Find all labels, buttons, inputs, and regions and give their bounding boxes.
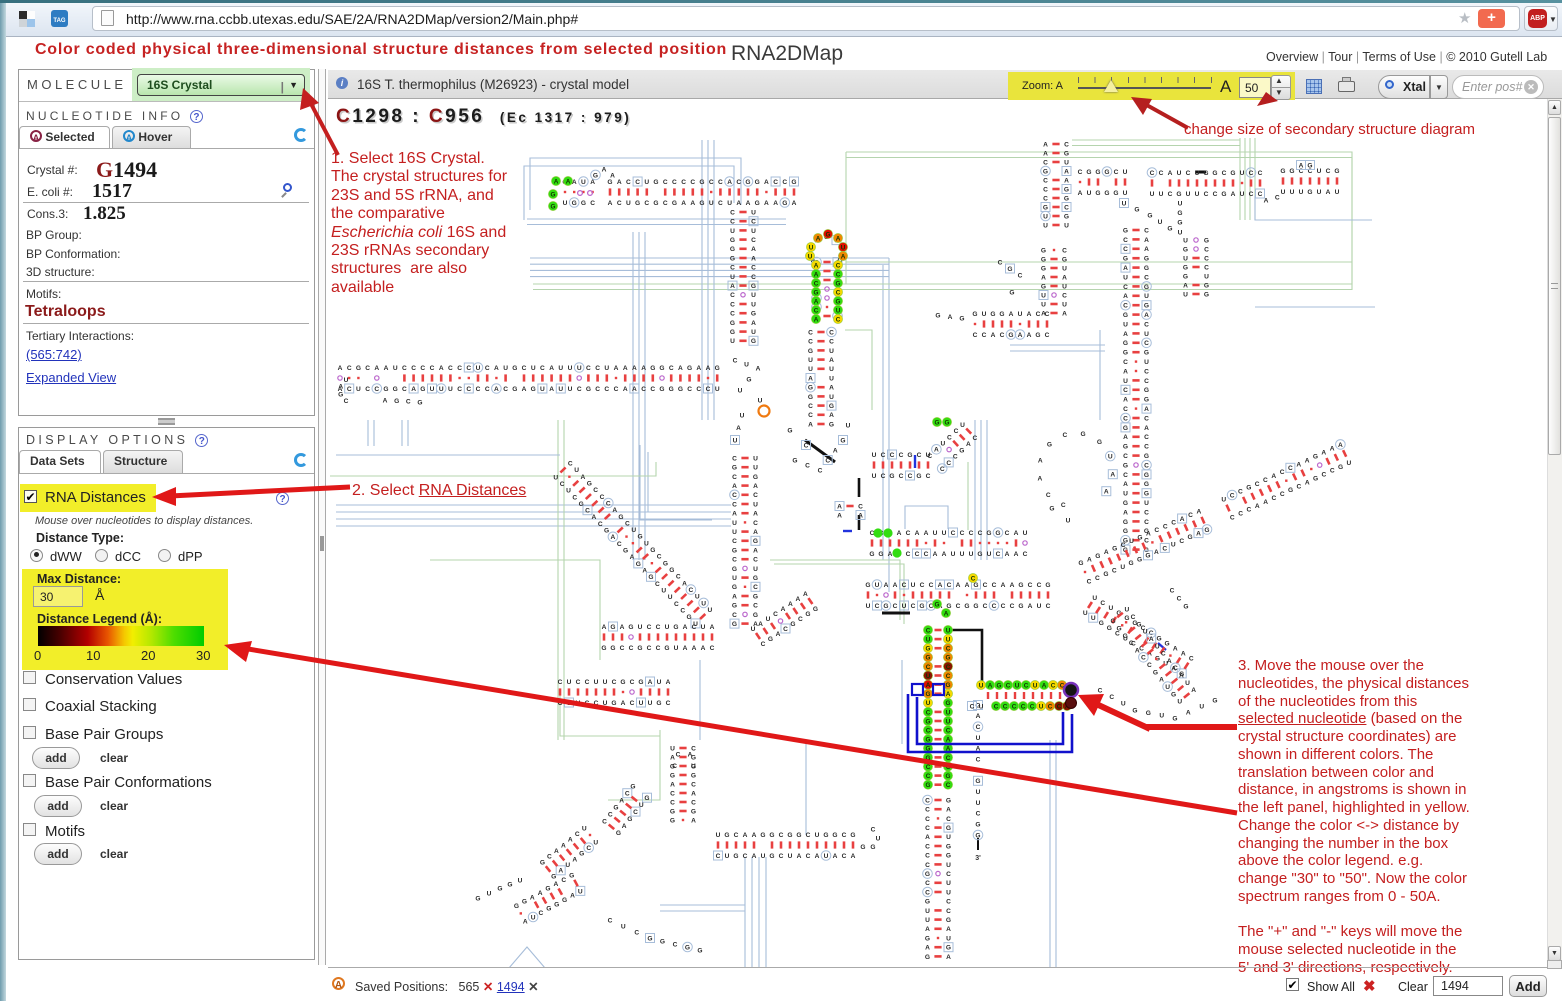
svg-text:G: G bbox=[1123, 340, 1128, 347]
svg-text:C: C bbox=[689, 587, 694, 594]
svg-text:A: A bbox=[751, 246, 756, 253]
svg-text:A: A bbox=[572, 856, 577, 863]
svg-text:G: G bbox=[616, 830, 621, 837]
svg-text:C: C bbox=[1213, 191, 1218, 198]
svg-text:A: A bbox=[732, 511, 737, 518]
svg-text:C: C bbox=[994, 703, 999, 710]
svg-text:G: G bbox=[926, 782, 931, 789]
svg-text:C: C bbox=[971, 575, 976, 582]
svg-text:A: A bbox=[965, 582, 970, 589]
svg-text:G: G bbox=[1132, 707, 1137, 714]
svg-text:G: G bbox=[687, 365, 692, 372]
svg-text:G: G bbox=[522, 899, 527, 906]
svg-text:G: G bbox=[393, 386, 398, 393]
svg-text:C: C bbox=[1018, 272, 1023, 279]
svg-text:C: C bbox=[946, 664, 951, 671]
svg-text:U: U bbox=[665, 624, 670, 631]
svg-text:C: C bbox=[983, 603, 988, 610]
svg-text:C: C bbox=[970, 703, 975, 710]
svg-text:C: C bbox=[1048, 703, 1053, 710]
svg-text:A: A bbox=[1087, 557, 1092, 564]
svg-text:G: G bbox=[653, 179, 658, 186]
svg-text:G: G bbox=[1008, 332, 1013, 339]
svg-text:G: G bbox=[1123, 312, 1128, 319]
svg-text:A: A bbox=[1181, 651, 1186, 658]
svg-text:A: A bbox=[752, 832, 757, 839]
svg-text:U: U bbox=[657, 679, 662, 686]
svg-text:U: U bbox=[1125, 607, 1130, 614]
svg-text:G: G bbox=[1041, 247, 1046, 254]
svg-text:G: G bbox=[787, 832, 792, 839]
svg-text:A: A bbox=[554, 881, 559, 888]
svg-text:G: G bbox=[1144, 453, 1149, 460]
svg-text:C: C bbox=[926, 709, 931, 716]
svg-text:U: U bbox=[1159, 713, 1164, 720]
svg-text:G: G bbox=[1144, 472, 1149, 479]
svg-text:C: C bbox=[1288, 465, 1293, 472]
svg-text:A: A bbox=[1154, 549, 1159, 556]
svg-text:G: G bbox=[935, 419, 940, 426]
svg-text:U: U bbox=[674, 645, 679, 652]
svg-text:A: A bbox=[1149, 636, 1154, 643]
svg-text:U: U bbox=[1018, 311, 1023, 318]
svg-text:G: G bbox=[1064, 213, 1069, 220]
svg-text:U: U bbox=[558, 386, 563, 393]
svg-text:C: C bbox=[1144, 340, 1149, 347]
svg-text:C: C bbox=[1322, 472, 1327, 479]
svg-text:U: U bbox=[1091, 615, 1096, 622]
svg-text:G: G bbox=[1145, 553, 1150, 560]
svg-text:U: U bbox=[925, 917, 930, 924]
svg-text:C: C bbox=[761, 641, 766, 648]
svg-text:G: G bbox=[787, 427, 792, 434]
svg-text:A: A bbox=[570, 893, 575, 900]
svg-text:U: U bbox=[946, 718, 951, 725]
svg-text:C: C bbox=[1024, 682, 1029, 689]
svg-text:C: C bbox=[617, 541, 622, 548]
svg-text:G: G bbox=[604, 528, 609, 535]
svg-text:G: G bbox=[732, 584, 737, 591]
svg-text:A: A bbox=[1144, 312, 1149, 319]
svg-text:A: A bbox=[1146, 531, 1151, 538]
svg-text:G: G bbox=[1095, 553, 1100, 560]
svg-text:A: A bbox=[1123, 265, 1128, 272]
svg-text:C: C bbox=[575, 831, 580, 838]
svg-text:C: C bbox=[842, 832, 847, 839]
svg-text:C: C bbox=[406, 399, 411, 406]
svg-text:C: C bbox=[978, 530, 983, 537]
svg-text:G: G bbox=[730, 320, 735, 327]
svg-text:C: C bbox=[732, 501, 737, 508]
svg-text:A: A bbox=[619, 798, 624, 805]
svg-text:C: C bbox=[1188, 512, 1193, 519]
svg-text:C: C bbox=[946, 728, 951, 735]
svg-text:A: A bbox=[682, 580, 687, 587]
svg-text:A: A bbox=[743, 832, 748, 839]
svg-text:C: C bbox=[1123, 246, 1128, 253]
svg-text:U: U bbox=[1155, 643, 1160, 650]
svg-text:G: G bbox=[678, 386, 683, 393]
svg-text:U: U bbox=[1064, 222, 1069, 229]
svg-text:U: U bbox=[503, 365, 508, 372]
svg-text:G: G bbox=[1134, 206, 1139, 213]
svg-text:U: U bbox=[670, 745, 675, 752]
svg-text:G: G bbox=[1203, 170, 1208, 177]
svg-text:G: G bbox=[997, 682, 1002, 689]
svg-text:G: G bbox=[1136, 621, 1141, 628]
svg-text:U: U bbox=[753, 566, 758, 573]
svg-text:A: A bbox=[816, 235, 821, 242]
svg-text:C: C bbox=[925, 880, 930, 887]
svg-text:U: U bbox=[866, 603, 871, 610]
svg-text:A: A bbox=[815, 853, 820, 860]
svg-text:C: C bbox=[706, 386, 711, 393]
svg-text:G: G bbox=[840, 437, 845, 444]
svg-text:G: G bbox=[883, 603, 888, 610]
svg-text:G: G bbox=[1086, 169, 1091, 176]
svg-text:G: G bbox=[753, 538, 758, 545]
svg-text:C: C bbox=[814, 280, 819, 287]
svg-text:C: C bbox=[1272, 495, 1277, 502]
svg-text:C: C bbox=[568, 461, 573, 468]
svg-text:C: C bbox=[1114, 169, 1119, 176]
svg-text:C: C bbox=[1258, 191, 1263, 198]
svg-text:C: C bbox=[634, 929, 639, 936]
svg-text:C: C bbox=[676, 751, 681, 758]
svg-text:U: U bbox=[604, 365, 609, 372]
svg-text:A: A bbox=[858, 512, 863, 519]
svg-text:C: C bbox=[718, 179, 723, 186]
svg-text:G: G bbox=[975, 832, 980, 839]
svg-text:C: C bbox=[598, 521, 603, 528]
svg-text:G: G bbox=[1176, 191, 1181, 198]
svg-text:C: C bbox=[1045, 332, 1050, 339]
svg-text:C: C bbox=[915, 551, 920, 558]
svg-text:U: U bbox=[875, 582, 880, 589]
svg-text:G: G bbox=[829, 403, 834, 410]
svg-text:G: G bbox=[946, 773, 951, 780]
svg-text:C: C bbox=[420, 365, 425, 372]
svg-text:U: U bbox=[732, 520, 737, 527]
svg-text:G: G bbox=[644, 795, 649, 802]
svg-text:G: G bbox=[926, 646, 931, 653]
svg-text:U: U bbox=[568, 365, 573, 372]
svg-text:C: C bbox=[946, 816, 951, 823]
svg-text:A: A bbox=[1042, 682, 1047, 689]
svg-text:C: C bbox=[946, 646, 951, 653]
svg-text:A: A bbox=[1005, 551, 1010, 558]
svg-text:G: G bbox=[870, 844, 875, 851]
svg-text:C: C bbox=[730, 311, 735, 318]
svg-text:U: U bbox=[574, 467, 579, 474]
svg-text:U: U bbox=[1083, 610, 1088, 617]
svg-text:C: C bbox=[1023, 551, 1028, 558]
svg-text:U: U bbox=[553, 474, 558, 481]
svg-text:C: C bbox=[595, 365, 600, 372]
svg-text:U: U bbox=[648, 700, 653, 707]
svg-text:A: A bbox=[1338, 442, 1343, 449]
svg-text:C: C bbox=[946, 871, 951, 878]
svg-text:C: C bbox=[1123, 284, 1128, 291]
svg-text:C: C bbox=[600, 494, 605, 501]
svg-text:U: U bbox=[876, 835, 881, 842]
svg-text:U: U bbox=[926, 673, 931, 680]
svg-text:U: U bbox=[946, 889, 951, 896]
svg-text:U: U bbox=[1183, 255, 1188, 262]
svg-text:C: C bbox=[608, 812, 613, 819]
svg-text:A: A bbox=[833, 447, 838, 454]
svg-text:U: U bbox=[946, 627, 951, 634]
svg-text:A: A bbox=[1179, 673, 1184, 680]
svg-text:C: C bbox=[973, 435, 978, 442]
svg-text:A: A bbox=[1123, 293, 1128, 300]
svg-text:U: U bbox=[1037, 603, 1042, 610]
svg-text:A: A bbox=[1027, 332, 1032, 339]
svg-text:C: C bbox=[1297, 483, 1302, 490]
svg-text:G: G bbox=[832, 832, 837, 839]
svg-text:C: C bbox=[593, 487, 598, 494]
svg-text:A: A bbox=[884, 582, 889, 589]
svg-text:G: G bbox=[1204, 282, 1209, 289]
svg-text:U: U bbox=[727, 200, 732, 207]
svg-text:C: C bbox=[773, 611, 778, 618]
svg-text:C: C bbox=[836, 262, 841, 269]
svg-text:C: C bbox=[751, 237, 756, 244]
svg-text:G: G bbox=[1111, 618, 1116, 625]
svg-text:A: A bbox=[851, 853, 856, 860]
svg-text:C: C bbox=[875, 603, 880, 610]
svg-text:U: U bbox=[1041, 292, 1046, 299]
svg-text:C: C bbox=[606, 500, 611, 507]
svg-text:G: G bbox=[1212, 697, 1217, 704]
svg-text:G: G bbox=[990, 311, 995, 318]
svg-text:A: A bbox=[549, 365, 554, 372]
svg-text:A: A bbox=[753, 483, 758, 490]
svg-text:U: U bbox=[1178, 200, 1183, 207]
svg-text:A: A bbox=[338, 383, 343, 390]
svg-text:G: G bbox=[972, 311, 977, 318]
svg-text:U: U bbox=[946, 637, 951, 644]
svg-text:G: G bbox=[1007, 266, 1012, 273]
svg-text:G: G bbox=[732, 465, 737, 472]
svg-text:G: G bbox=[823, 832, 828, 839]
svg-text:G: G bbox=[540, 859, 545, 866]
svg-text:C: C bbox=[1123, 359, 1128, 366]
svg-text:A: A bbox=[776, 631, 781, 638]
svg-text:C: C bbox=[753, 520, 758, 527]
svg-text:U: U bbox=[982, 311, 987, 318]
svg-text:U: U bbox=[1144, 331, 1149, 338]
svg-text:A: A bbox=[558, 868, 563, 875]
svg-text:A: A bbox=[1123, 331, 1128, 338]
svg-text:A: A bbox=[1018, 332, 1023, 339]
svg-text:G: G bbox=[733, 853, 738, 860]
svg-text:G: G bbox=[946, 655, 951, 662]
svg-text:G: G bbox=[610, 645, 615, 652]
svg-text:G: G bbox=[1307, 189, 1312, 196]
svg-text:U: U bbox=[841, 244, 846, 251]
svg-text:A: A bbox=[1104, 549, 1109, 556]
svg-text:U: U bbox=[979, 703, 984, 710]
svg-text:A: A bbox=[632, 386, 637, 393]
svg-text:A: A bbox=[648, 679, 653, 686]
svg-text:G: G bbox=[813, 606, 818, 613]
svg-text:C: C bbox=[612, 679, 617, 686]
svg-text:C: C bbox=[946, 673, 951, 680]
svg-text:A: A bbox=[602, 166, 607, 173]
svg-text:C: C bbox=[558, 700, 563, 707]
svg-text:A: A bbox=[1028, 603, 1033, 610]
svg-text:C: C bbox=[1230, 492, 1235, 499]
svg-text:C: C bbox=[522, 365, 527, 372]
svg-text:G: G bbox=[1313, 476, 1318, 483]
svg-text:C: C bbox=[998, 259, 1003, 266]
svg-text:C: C bbox=[1010, 603, 1015, 610]
svg-text:U: U bbox=[344, 377, 349, 384]
svg-text:G: G bbox=[1172, 715, 1177, 722]
svg-text:U: U bbox=[809, 244, 814, 251]
svg-text:G: G bbox=[1117, 626, 1122, 633]
svg-text:C: C bbox=[1144, 444, 1149, 451]
svg-text:A: A bbox=[678, 365, 683, 372]
svg-text:A: A bbox=[736, 425, 741, 432]
svg-text:A: A bbox=[1299, 162, 1304, 169]
svg-text:C: C bbox=[608, 917, 613, 924]
svg-text:C: C bbox=[954, 428, 959, 435]
svg-text:G: G bbox=[925, 935, 930, 942]
svg-text:A: A bbox=[523, 919, 528, 926]
svg-text:G: G bbox=[656, 700, 661, 707]
svg-text:G: G bbox=[975, 767, 980, 774]
svg-text:U: U bbox=[1120, 564, 1125, 571]
svg-text:A: A bbox=[683, 624, 688, 631]
svg-text:G: G bbox=[650, 547, 655, 554]
svg-text:A: A bbox=[1010, 582, 1015, 589]
svg-text:A: A bbox=[549, 386, 554, 393]
svg-text:C: C bbox=[466, 365, 471, 372]
svg-text:C: C bbox=[402, 365, 407, 372]
svg-text:C: C bbox=[1162, 545, 1167, 552]
svg-text:C: C bbox=[902, 582, 907, 589]
svg-text:G: G bbox=[659, 386, 664, 393]
svg-text:A: A bbox=[338, 365, 343, 372]
svg-text:C: C bbox=[1177, 595, 1182, 602]
svg-text:C: C bbox=[1123, 387, 1128, 394]
svg-text:U: U bbox=[976, 800, 981, 807]
svg-text:A: A bbox=[621, 700, 626, 707]
svg-text:A: A bbox=[829, 357, 834, 364]
svg-text:C: C bbox=[926, 773, 931, 780]
svg-text:G: G bbox=[1099, 620, 1104, 627]
svg-text:A: A bbox=[688, 751, 693, 758]
svg-text:G: G bbox=[1144, 284, 1149, 291]
svg-text:G: G bbox=[610, 624, 615, 631]
svg-text:A: A bbox=[1305, 479, 1310, 486]
svg-text:U: U bbox=[1062, 283, 1067, 290]
svg-text:A: A bbox=[701, 645, 706, 652]
svg-text:U: U bbox=[1183, 237, 1188, 244]
svg-text:U: U bbox=[808, 357, 813, 364]
svg-text:U: U bbox=[1144, 500, 1149, 507]
svg-text:A: A bbox=[814, 271, 819, 278]
svg-text:G: G bbox=[926, 737, 931, 744]
svg-text:G: G bbox=[1123, 462, 1128, 469]
svg-text:A: A bbox=[925, 926, 930, 933]
svg-text:C: C bbox=[344, 398, 349, 405]
svg-text:C: C bbox=[1144, 462, 1149, 469]
svg-text:U: U bbox=[1092, 595, 1097, 602]
svg-text:U: U bbox=[1158, 219, 1163, 226]
svg-text:C: C bbox=[753, 557, 758, 564]
svg-text:G: G bbox=[569, 873, 574, 880]
svg-text:A: A bbox=[706, 365, 711, 372]
svg-text:A: A bbox=[808, 421, 813, 428]
svg-text:U: U bbox=[576, 700, 581, 707]
svg-text:C: C bbox=[650, 386, 655, 393]
svg-text:C: C bbox=[430, 365, 435, 372]
svg-text:C: C bbox=[926, 473, 931, 480]
svg-text:G: G bbox=[593, 172, 598, 179]
svg-text:A: A bbox=[924, 530, 929, 537]
svg-text:G: G bbox=[1124, 615, 1129, 622]
svg-text:G: G bbox=[638, 679, 643, 686]
svg-text:G: G bbox=[973, 582, 978, 589]
svg-text:C: C bbox=[973, 332, 978, 339]
svg-text:G: G bbox=[1183, 603, 1188, 610]
svg-text:A: A bbox=[1014, 551, 1019, 558]
svg-text:U: U bbox=[1347, 460, 1352, 467]
svg-text:U: U bbox=[960, 551, 965, 558]
svg-text:G: G bbox=[919, 603, 924, 610]
svg-text:C: C bbox=[1123, 237, 1128, 244]
svg-text:C: C bbox=[808, 403, 813, 410]
svg-text:U: U bbox=[566, 488, 571, 495]
svg-text:G: G bbox=[724, 832, 729, 839]
svg-text:U: U bbox=[1039, 703, 1044, 710]
svg-text:U: U bbox=[1204, 273, 1209, 280]
svg-text:U: U bbox=[487, 890, 492, 897]
svg-text:U: U bbox=[577, 365, 582, 372]
svg-text:C: C bbox=[798, 616, 803, 623]
svg-text:G: G bbox=[670, 772, 675, 779]
svg-text:C: C bbox=[1030, 703, 1035, 710]
svg-text:A: A bbox=[1123, 368, 1128, 375]
svg-text:C: C bbox=[710, 645, 715, 652]
svg-text:G: G bbox=[1123, 425, 1128, 432]
svg-text:G: G bbox=[1177, 220, 1182, 227]
svg-text:C: C bbox=[1051, 682, 1056, 689]
svg-text:A: A bbox=[946, 691, 951, 698]
svg-text:A: A bbox=[829, 385, 834, 392]
svg-text:G: G bbox=[1144, 481, 1149, 488]
svg-text:G: G bbox=[1137, 556, 1142, 563]
svg-text:G: G bbox=[1123, 519, 1128, 526]
svg-text:C: C bbox=[1238, 489, 1243, 496]
svg-text:G: G bbox=[611, 700, 616, 707]
svg-text:U: U bbox=[751, 292, 756, 299]
svg-text:C: C bbox=[804, 442, 809, 449]
svg-text:U: U bbox=[1023, 530, 1028, 537]
svg-text:U: U bbox=[1186, 191, 1191, 198]
svg-text:A: A bbox=[1263, 499, 1268, 506]
svg-text:A: A bbox=[696, 365, 701, 372]
svg-text:C: C bbox=[836, 316, 841, 323]
svg-text:G: G bbox=[946, 917, 951, 924]
svg-text:C: C bbox=[947, 434, 952, 441]
svg-text:A: A bbox=[893, 582, 898, 589]
svg-text:C: C bbox=[1159, 170, 1164, 177]
svg-text:A: A bbox=[814, 298, 819, 305]
